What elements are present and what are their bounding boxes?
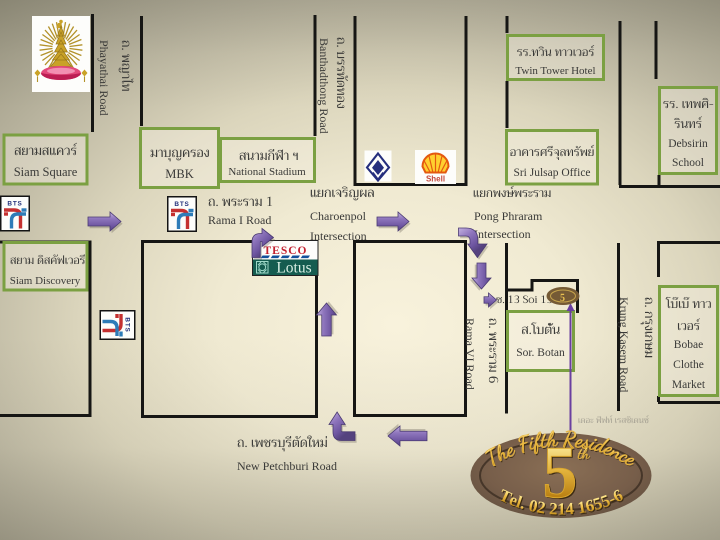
svg-text:Market: Market [672,379,706,391]
svg-text:Twin Tower Hotel: Twin Tower Hotel [515,65,595,77]
svg-text:Rama I Road: Rama I Road [208,213,271,227]
svg-text:Siam Square: Siam Square [14,165,78,179]
svg-text:Clothe: Clothe [673,359,704,371]
svg-text:BTS: BTS [7,201,22,208]
svg-text:Shell: Shell [426,175,445,184]
svg-text:Sri Julsap Office: Sri Julsap Office [513,167,590,179]
svg-text:Bobae: Bobae [674,339,703,351]
svg-text:New Petchburi Road: New Petchburi Road [237,459,337,473]
svg-text:Siam Discovery: Siam Discovery [10,275,81,287]
svg-text:School: School [672,157,704,169]
svg-text:TESCO: TESCO [264,245,308,257]
svg-text:Phayathai Road: Phayathai Road [97,40,111,116]
svg-text:BTS: BTS [174,201,189,208]
svg-text:Pong Phraram: Pong Phraram [474,209,543,223]
svg-text:Lotus: Lotus [276,260,311,277]
svg-text:Banthadthong Road: Banthadthong Road [317,38,331,134]
svg-text:Rama VI Road: Rama VI Road [463,318,477,390]
svg-text:National Stadium: National Stadium [228,166,306,178]
svg-text:Intersection: Intersection [474,227,531,241]
svg-text:Krung Kasem Road: Krung Kasem Road [617,297,631,392]
svg-text:MBK: MBK [165,167,193,181]
svg-text:BTS: BTS [124,317,131,332]
svg-text:Debsirin: Debsirin [668,138,708,150]
svg-text:Sor. Botan: Sor. Botan [516,347,565,359]
svg-text:Charoenpol: Charoenpol [310,209,367,223]
